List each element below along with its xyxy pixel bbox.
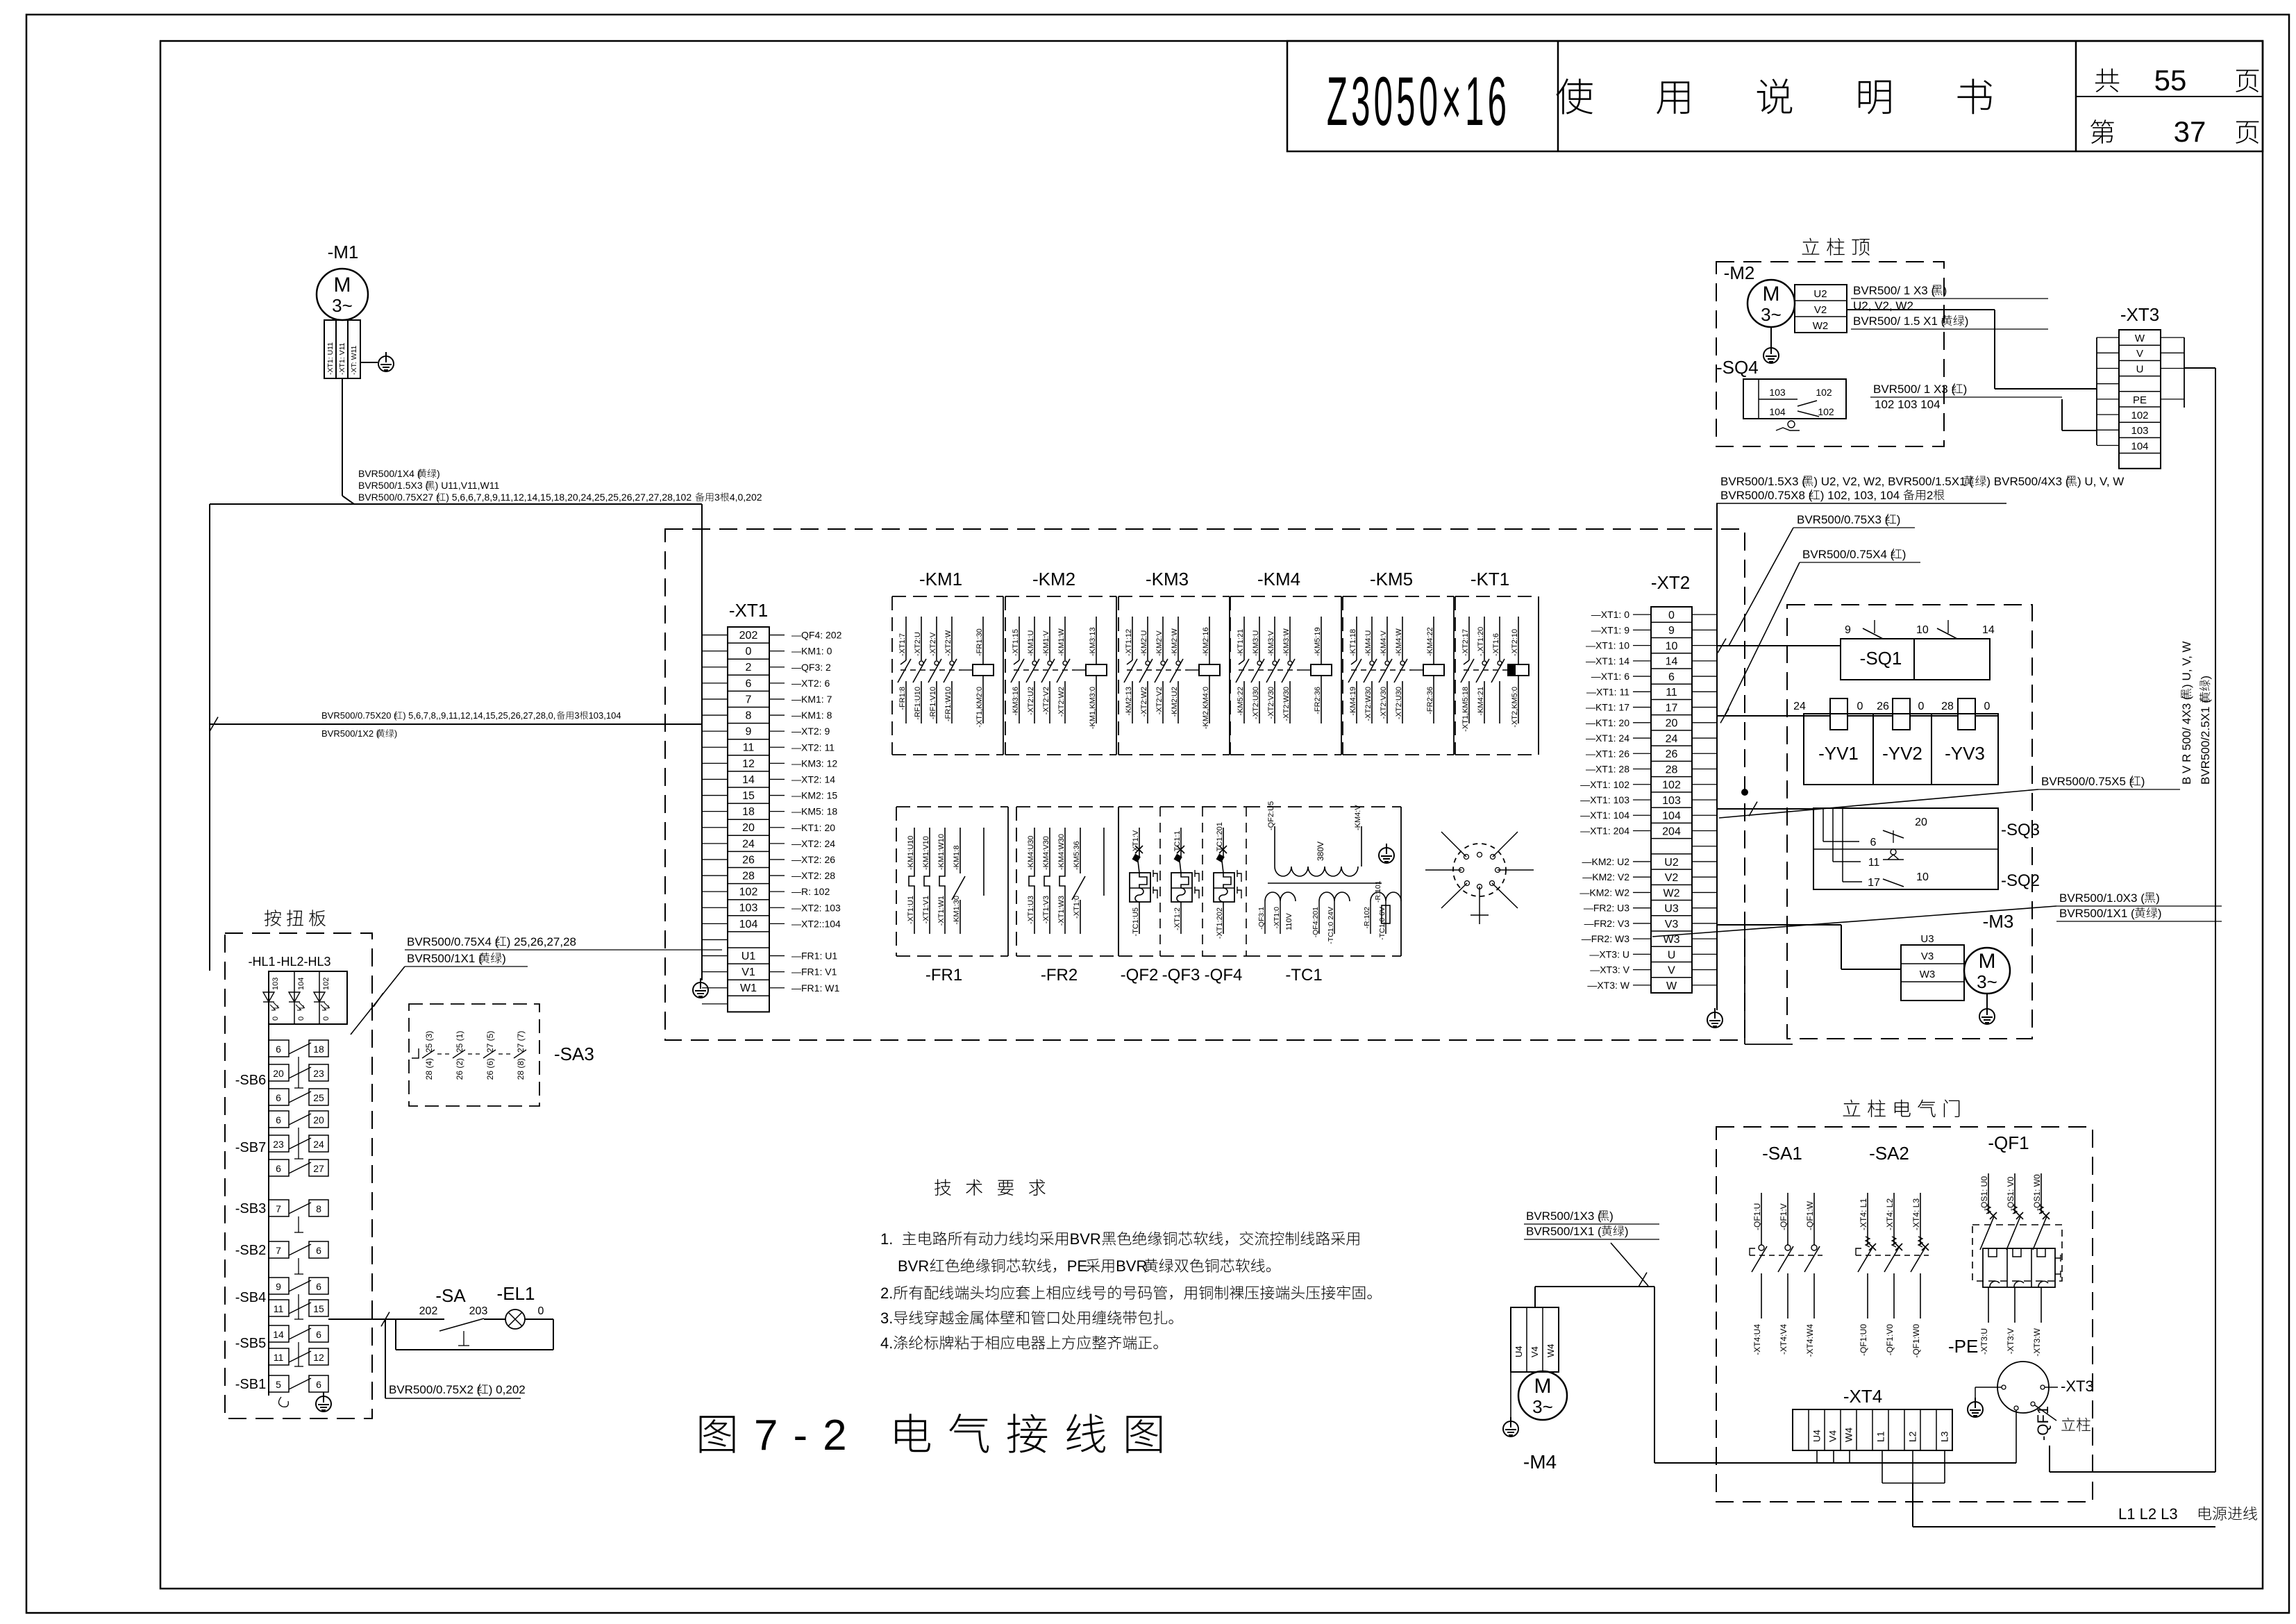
svg-text:20: 20 <box>273 1068 284 1079</box>
svg-text:) 0,202: ) 0,202 <box>489 1383 526 1396</box>
svg-text:-M4: -M4 <box>1523 1451 1557 1473</box>
svg-text:-XT1:0: -XT1:0 <box>1273 907 1281 929</box>
svg-text:-QF2: -QF2 <box>1121 966 1159 985</box>
svg-text:0: 0 <box>1857 701 1863 712</box>
svg-text:-XT3:V: -XT3:V <box>2006 1328 2016 1354</box>
svg-text:20: 20 <box>1915 817 1927 828</box>
svg-text:-KM1:U: -KM1:U <box>1027 630 1035 656</box>
svg-text:—XT1: 204: —XT1: 204 <box>1580 825 1629 836</box>
svg-text:—QF3: 2: —QF3: 2 <box>791 662 831 673</box>
svg-text:-XT3:U: -XT3:U <box>1979 1328 1989 1355</box>
svg-text:-QF1:V: -QF1:V <box>1779 1203 1788 1230</box>
svg-text:-KM4:U30: -KM4:U30 <box>1027 835 1035 870</box>
svg-text:-QF1:W: -QF1:W <box>1805 1200 1815 1230</box>
svg-text:26: 26 <box>742 854 755 866</box>
svg-text:3~: 3~ <box>332 295 353 316</box>
svg-text:W4: W4 <box>1545 1344 1556 1358</box>
svg-text:V3: V3 <box>1665 919 1679 930</box>
svg-text:11: 11 <box>274 1352 284 1363</box>
svg-text:26 (2): 26 (2) <box>455 1058 464 1080</box>
svg-text:BVR: BVR <box>1070 1230 1101 1248</box>
svg-text:24: 24 <box>313 1139 324 1150</box>
svg-text:M: M <box>1979 950 1996 973</box>
svg-text:-FR2:36: -FR2:36 <box>1426 687 1434 714</box>
svg-text:23: 23 <box>313 1068 324 1079</box>
svg-text:-QF2:U5: -QF2:U5 <box>1267 801 1275 830</box>
svg-text:-KM4:V30: -KM4:V30 <box>1042 836 1050 870</box>
svg-text:-XT4:U4: -XT4:U4 <box>1752 1324 1762 1355</box>
svg-text:-XT2:W30: -XT2:W30 <box>1282 687 1291 721</box>
svg-text:26 (6): 26 (6) <box>485 1058 495 1080</box>
svg-text:-XT1,KM5:18: -XT1,KM5:18 <box>1461 687 1470 732</box>
svg-text:BVR500/1X1 (: BVR500/1X1 ( <box>1526 1225 1602 1238</box>
svg-text:55: 55 <box>2154 64 2187 97</box>
svg-text:) 25,26,27,28: ) 25,26,27,28 <box>507 935 576 948</box>
svg-text:L1 L2 L3: L1 L2 L3 <box>2118 1505 2178 1523</box>
svg-text:): ) <box>502 952 506 965</box>
svg-text:28: 28 <box>1941 701 1954 712</box>
svg-text:23: 23 <box>273 1139 284 1150</box>
svg-text:BVR500/0.75X4 (: BVR500/0.75X4 ( <box>407 935 499 948</box>
svg-text:203: 203 <box>469 1305 488 1317</box>
svg-text:—XT2: 26: —XT2: 26 <box>791 854 835 865</box>
svg-text:-SQ3: -SQ3 <box>2001 821 2040 839</box>
svg-text:BVR500/ 1.5 X1 (: BVR500/ 1.5 X1 ( <box>1853 315 1945 328</box>
svg-text:—XT1: 11: —XT1: 11 <box>1586 686 1629 697</box>
svg-text:-XT1:W3: -XT1:W3 <box>1057 896 1066 926</box>
svg-text:-KM2:U2: -KM2:U2 <box>1171 687 1179 717</box>
svg-text:): ) <box>2141 775 2145 788</box>
svg-text:-QF3:1: -QF3:1 <box>1257 907 1266 930</box>
svg-text:-KM4:U: -KM4:U <box>1364 630 1373 656</box>
svg-text:BVR500/0.75X4 (: BVR500/0.75X4 ( <box>1802 548 1895 561</box>
svg-text:-KM2:W: -KM2:W <box>1171 628 1179 656</box>
svg-text:-TC1:0 24V: -TC1:0 24V <box>1327 907 1335 944</box>
svg-text:-KM3:U: -KM3:U <box>1252 630 1260 656</box>
svg-text:-XT2:W2: -XT2:W2 <box>1140 687 1148 717</box>
svg-text:14: 14 <box>1666 656 1678 668</box>
svg-text:202: 202 <box>419 1305 438 1317</box>
svg-text:PE: PE <box>1067 1257 1087 1275</box>
svg-text:8: 8 <box>316 1203 321 1214</box>
svg-text:-XT3: -XT3 <box>2061 1378 2094 1395</box>
svg-text:—KM2: U2: —KM2: U2 <box>1582 856 1630 867</box>
svg-text:-XT2:W: -XT2:W <box>944 630 953 656</box>
svg-text:-KM3: -KM3 <box>1146 569 1189 589</box>
svg-text:-SQ1: -SQ1 <box>1860 648 1902 669</box>
svg-text:2: 2 <box>1927 489 1933 502</box>
svg-text:-KM1:W10: -KM1:W10 <box>937 834 946 870</box>
svg-text:-KM4:V: -KM4:V <box>1354 805 1362 830</box>
svg-text:—XT3: V: —XT3: V <box>1590 964 1629 976</box>
svg-text:BVR500/1X1 (: BVR500/1X1 ( <box>407 952 483 965</box>
svg-text:14: 14 <box>273 1329 284 1340</box>
svg-text:—XT1: 6: —XT1: 6 <box>1591 671 1629 682</box>
svg-text:M: M <box>1534 1375 1552 1398</box>
svg-text:110V: 110V <box>1285 912 1293 930</box>
svg-text:-XT2:V30: -XT2:V30 <box>1267 687 1275 719</box>
svg-text:-XT3: -XT3 <box>2120 304 2159 325</box>
svg-text:-XT4: -XT4 <box>1843 1386 1882 1407</box>
svg-text:—XT1: 102: —XT1: 102 <box>1580 779 1629 790</box>
svg-text:104: 104 <box>2131 440 2148 452</box>
svg-text:BVR: BVR <box>898 1257 929 1275</box>
svg-text:-KM3:V: -KM3:V <box>1267 630 1275 656</box>
svg-text:-KM1,KM3:0: -KM1,KM3:0 <box>1089 687 1097 729</box>
svg-text:-XT2:V30: -XT2:V30 <box>1380 687 1388 719</box>
svg-text:BVR500/1X3 (: BVR500/1X3 ( <box>1526 1209 1602 1223</box>
svg-text:0: 0 <box>1668 610 1675 621</box>
svg-text:) U, V, W: ) U, V, W <box>2077 475 2124 488</box>
svg-text:) U2, V2, W2, BVR500/1.5X1 (: ) U2, V2, W2, BVR500/1.5X1 ( <box>1813 475 1973 488</box>
svg-text:103: 103 <box>739 903 758 914</box>
svg-text:-M3: -M3 <box>1983 911 2014 932</box>
svg-text:-SA1: -SA1 <box>1762 1143 1802 1164</box>
svg-text:0: 0 <box>1984 701 1991 712</box>
svg-text:-FR1: -FR1 <box>925 966 962 985</box>
svg-text:-QF1:U0: -QF1:U0 <box>1859 1324 1868 1356</box>
svg-text:11: 11 <box>1868 857 1880 869</box>
svg-text:—KT1: 20: —KT1: 20 <box>791 822 835 833</box>
svg-text:W2: W2 <box>1664 887 1680 899</box>
svg-text:-XT4: L2: -XT4: L2 <box>1885 1198 1895 1230</box>
svg-text:202: 202 <box>739 630 758 642</box>
svg-text:-,XT1:20: -,XT1:20 <box>1477 627 1485 656</box>
svg-text:-SB4: -SB4 <box>235 1290 266 1305</box>
svg-text:-XT2:V2: -XT2:V2 <box>1042 687 1050 714</box>
svg-text:-XT: W11: -XT: W11 <box>350 345 358 375</box>
svg-text:9: 9 <box>746 726 752 738</box>
svg-text:—XT1: 103: —XT1: 103 <box>1580 794 1629 805</box>
svg-text:11: 11 <box>743 742 755 754</box>
svg-text:0: 0 <box>271 1016 280 1021</box>
svg-text:6: 6 <box>276 1044 281 1055</box>
svg-text:) U11,V11,W11: ) U11,V11,W11 <box>435 480 500 491</box>
svg-text:-KM2: -KM2 <box>1032 569 1075 589</box>
svg-text:-KM4:W: -KM4:W <box>1395 628 1403 656</box>
svg-text:103,104: 103,104 <box>589 710 621 721</box>
svg-text:-XT4: L1: -XT4: L1 <box>1859 1198 1868 1230</box>
svg-text:-KM4:21: -KM4:21 <box>1477 687 1485 716</box>
svg-text:9: 9 <box>1845 624 1851 636</box>
svg-text:W3: W3 <box>1920 969 1936 980</box>
svg-text:—XT1: 9: —XT1: 9 <box>1591 624 1629 635</box>
svg-text:W: W <box>1666 980 1677 992</box>
svg-text:0: 0 <box>538 1305 544 1317</box>
svg-text:0: 0 <box>746 646 752 658</box>
svg-text:—XT2: 11: —XT2: 11 <box>791 742 835 753</box>
svg-text:—XT2::104: —XT2::104 <box>791 918 841 929</box>
svg-text:-KM1:V10: -KM1:V10 <box>922 836 930 870</box>
svg-text:): ) <box>1943 284 1947 297</box>
svg-text:): ) <box>2158 907 2162 920</box>
svg-text:26: 26 <box>1666 748 1678 760</box>
svg-text:-XT1:7: -XT1:7 <box>898 633 907 656</box>
svg-text:2: 2 <box>746 662 752 673</box>
svg-text:380V: 380V <box>1316 842 1325 861</box>
svg-text:-XT1:U1: -XT1:U1 <box>907 896 915 924</box>
svg-text:—XT3: U: —XT3: U <box>1589 948 1629 960</box>
svg-text:-KM2:U: -KM2:U <box>1140 630 1148 656</box>
svg-text:-SB7: -SB7 <box>235 1140 266 1155</box>
svg-text:—XT2: 6: —XT2: 6 <box>791 678 830 689</box>
svg-text:U2: U2 <box>1664 857 1679 869</box>
svg-text:-SB1: -SB1 <box>235 1377 266 1392</box>
svg-text:11: 11 <box>1666 687 1677 698</box>
svg-text:-SA2: -SA2 <box>1869 1143 1909 1164</box>
svg-text:-RF1:U10: -RF1:U10 <box>914 687 922 720</box>
svg-text:14: 14 <box>742 774 755 786</box>
svg-text:): ) <box>2199 676 2212 680</box>
svg-text:28 (4): 28 (4) <box>424 1058 434 1080</box>
svg-text:-M2: -M2 <box>1724 262 1755 283</box>
svg-text:-EL1: -EL1 <box>497 1283 535 1304</box>
svg-text:7-2: 7-2 <box>754 1412 862 1459</box>
svg-text:-XT2,KM5:0: -XT2,KM5:0 <box>1511 687 1519 728</box>
svg-text:B V R 500/ 4X3 (: B V R 500/ 4X3 ( <box>2180 696 2193 785</box>
svg-text:): ) <box>1897 513 1901 526</box>
svg-text:): ) <box>1902 548 1907 561</box>
svg-text:-KM5:19: -KM5:19 <box>1314 627 1322 656</box>
svg-text:27: 27 <box>313 1163 324 1174</box>
svg-text:V3: V3 <box>1921 951 1934 962</box>
svg-text:) BVR500/4X3 (: ) BVR500/4X3 ( <box>1986 475 2069 488</box>
svg-text:-XT2:W2: -XT2:W2 <box>1057 687 1066 717</box>
svg-text:): ) <box>1965 315 1969 328</box>
svg-text:-QF1: -QF1 <box>1988 1132 2029 1153</box>
svg-text:-QF3: -QF3 <box>1162 966 1200 985</box>
svg-text:V4: V4 <box>1530 1346 1540 1357</box>
svg-text:V: V <box>2136 348 2143 360</box>
svg-text:—KM5: 18: —KM5: 18 <box>791 806 837 817</box>
svg-text:—FR1: W1: —FR1: W1 <box>791 982 839 994</box>
svg-text:-SA: -SA <box>435 1285 466 1306</box>
svg-text:-KM2:13: -KM2:13 <box>1125 687 1133 716</box>
svg-text:—KM2: V2: —KM2: V2 <box>1582 871 1629 882</box>
svg-text:37: 37 <box>2174 115 2206 148</box>
svg-text:-KM1:8: -KM1:8 <box>953 846 961 870</box>
svg-text:—XT2: 24: —XT2: 24 <box>791 838 835 849</box>
svg-text:-KT1: -KT1 <box>1470 569 1509 589</box>
svg-text:7: 7 <box>746 694 752 705</box>
svg-text:): ) <box>1625 1225 1629 1238</box>
svg-text:Z3050×16: Z3050×16 <box>1327 62 1510 140</box>
svg-text:6: 6 <box>1870 837 1877 848</box>
svg-text:-PE: -PE <box>1948 1336 1978 1357</box>
svg-text:17: 17 <box>1868 877 1880 889</box>
svg-text:104: 104 <box>1662 810 1681 822</box>
svg-text:V2: V2 <box>1814 304 1827 316</box>
svg-text:-YV3: -YV3 <box>1945 743 1985 764</box>
svg-text:-XT2:U2: -XT2:U2 <box>1027 687 1035 715</box>
svg-text:—R: 102: —R: 102 <box>791 886 830 897</box>
svg-text:-FR1:W10: -FR1:W10 <box>944 687 953 721</box>
svg-text:104: 104 <box>297 978 305 990</box>
svg-text:): ) <box>1609 1209 1614 1223</box>
svg-text:V2: V2 <box>1665 872 1679 884</box>
svg-text:102: 102 <box>322 978 330 990</box>
svg-text:-R:102: -R:102 <box>1363 907 1371 929</box>
svg-text:-SQ4: -SQ4 <box>1716 357 1759 378</box>
svg-text:102: 102 <box>1818 406 1834 417</box>
svg-text:25 (3): 25 (3) <box>424 1031 434 1053</box>
svg-text:-KM4: -KM4 <box>1257 569 1300 589</box>
svg-text:BVR500/ 1 X3 (: BVR500/ 1 X3 ( <box>1873 383 1955 396</box>
svg-text:14: 14 <box>1982 624 1995 636</box>
svg-text:-KM4:V: -KM4:V <box>1380 630 1388 656</box>
svg-text:28: 28 <box>1666 764 1678 776</box>
svg-text:): ) <box>1963 383 1968 396</box>
svg-text:): ) <box>2156 891 2160 905</box>
svg-text:BVR500/0.75X8 (: BVR500/0.75X8 ( <box>1720 489 1813 502</box>
svg-text:6: 6 <box>1668 671 1675 683</box>
svg-text:104: 104 <box>739 919 758 930</box>
svg-text:-KM3:16: -KM3:16 <box>1012 687 1020 716</box>
svg-text:-HL1: -HL1 <box>248 955 275 969</box>
svg-text:-KM4:22: -KM4:22 <box>1426 627 1434 656</box>
svg-text:L1: L1 <box>1875 1431 1886 1442</box>
svg-text:-XT1,KM2:0: -XT1,KM2:0 <box>975 687 984 728</box>
svg-text:-TC1:1: -TC1:1 <box>1173 830 1182 854</box>
svg-text:—FR2: W3: —FR2: W3 <box>1582 933 1629 944</box>
svg-text:6: 6 <box>746 678 752 689</box>
svg-text:-KM2,KM4:0: -KM2,KM4:0 <box>1202 687 1210 729</box>
svg-text:—XT1: 104: —XT1: 104 <box>1580 810 1629 821</box>
svg-text:—XT2: 9: —XT2: 9 <box>791 726 830 737</box>
svg-text:10: 10 <box>1916 624 1929 636</box>
svg-text:BVR: BVR <box>1116 1257 1147 1275</box>
svg-text:102 103 104: 102 103 104 <box>1875 398 1941 411</box>
svg-text:—FR2: U3: —FR2: U3 <box>1584 903 1629 914</box>
svg-text:5: 5 <box>276 1379 281 1390</box>
svg-text:0: 0 <box>1918 701 1925 712</box>
svg-text:BVR500/0.75X3 (: BVR500/0.75X3 ( <box>1797 513 1889 526</box>
svg-text:) 5,6,6,7,8,9,11,12,14,15,18,: ) 5,6,6,7,8,9,11,12,14,15,18,20,24,25,25… <box>446 492 692 503</box>
svg-text:-XT4:V4: -XT4:V4 <box>1779 1324 1788 1355</box>
svg-text:—KT1: 17: —KT1: 17 <box>1586 702 1629 713</box>
svg-text:104: 104 <box>1769 406 1786 417</box>
svg-text:-XT2:U30: -XT2:U30 <box>1395 687 1403 719</box>
svg-text:6: 6 <box>276 1092 281 1103</box>
svg-text:10: 10 <box>1916 871 1929 883</box>
svg-text:4.: 4. <box>880 1334 893 1352</box>
svg-text:-QF4:201: -QF4:201 <box>1312 907 1320 938</box>
svg-text:BVR500/0.75X20 (: BVR500/0.75X20 ( <box>321 710 397 721</box>
svg-text:-TC1: -TC1 <box>1285 966 1322 985</box>
svg-text:BVR500/1.5X3 (: BVR500/1.5X3 ( <box>358 480 429 491</box>
svg-text:-KM1: -KM1 <box>919 569 962 589</box>
svg-text:20: 20 <box>742 822 755 834</box>
svg-text:—XT1: 28: —XT1: 28 <box>1586 764 1629 775</box>
svg-text:3: 3 <box>574 710 579 721</box>
svg-text:102: 102 <box>739 887 758 898</box>
svg-text:M: M <box>334 274 351 296</box>
svg-text:6: 6 <box>276 1163 281 1174</box>
svg-text:-XT1:6: -XT1:6 <box>1492 633 1500 656</box>
svg-text:-QF1:V0: -QF1:V0 <box>1885 1324 1895 1356</box>
svg-text:-XT1:12: -XT1:12 <box>1125 629 1133 656</box>
svg-text:9: 9 <box>276 1281 281 1292</box>
svg-text:U4: U4 <box>1514 1346 1524 1357</box>
svg-text:3: 3 <box>714 492 720 503</box>
svg-text:L3: L3 <box>1939 1431 1950 1442</box>
svg-text:-FR1:8: -FR1:8 <box>898 687 907 710</box>
svg-text:BVR500/1X2 (: BVR500/1X2 ( <box>321 728 380 739</box>
svg-text:-SB2: -SB2 <box>235 1243 266 1258</box>
svg-text:6: 6 <box>316 1329 321 1340</box>
svg-text:-KM4:19: -KM4:19 <box>1349 687 1357 716</box>
svg-text:PE: PE <box>2133 394 2147 406</box>
svg-text:—KM1: 7: —KM1: 7 <box>791 694 832 705</box>
svg-text:103: 103 <box>1769 387 1786 398</box>
svg-text:-KM1:W: -KM1:W <box>1057 628 1066 656</box>
svg-text:-KM1:V: -KM1:V <box>1042 630 1050 656</box>
svg-text:-XT2:V2: -XT2:V2 <box>1155 687 1164 714</box>
svg-text:10: 10 <box>1666 640 1678 652</box>
svg-text:24: 24 <box>1666 733 1678 745</box>
svg-text:7: 7 <box>276 1245 281 1256</box>
svg-text:103: 103 <box>271 978 280 990</box>
svg-text:—XT2: 14: —XT2: 14 <box>791 773 835 785</box>
svg-text:-XT1:V1: -XT1:V1 <box>922 896 930 923</box>
svg-text:) 5,6,7,8,,9,11,12,14,15,25,26: ) 5,6,7,8,,9,11,12,14,15,25,26,27,28,0, <box>403 710 555 721</box>
svg-text:—KM2: W2: —KM2: W2 <box>1579 887 1629 898</box>
svg-text:—XT1: 24: —XT1: 24 <box>1586 733 1629 744</box>
svg-text:-QF1:U: -QF1:U <box>1752 1203 1762 1230</box>
svg-text:1.: 1. <box>880 1230 893 1248</box>
svg-text:9: 9 <box>1668 625 1675 637</box>
svg-text:3~: 3~ <box>1761 304 1782 325</box>
svg-text:-XT2:U: -XT2:U <box>914 632 922 656</box>
svg-text:-SQ2: -SQ2 <box>2001 871 2040 890</box>
svg-text:U2: U2 <box>1813 288 1827 300</box>
svg-text:—KM2: 15: —KM2: 15 <box>791 790 837 801</box>
svg-text:20: 20 <box>1666 718 1678 730</box>
svg-text:-YV1: -YV1 <box>1818 743 1859 764</box>
svg-text:-KM5: -KM5 <box>1370 569 1413 589</box>
svg-text:—XT2: 28: —XT2: 28 <box>791 870 835 881</box>
svg-text:W4: W4 <box>1843 1428 1854 1442</box>
svg-text:6: 6 <box>276 1114 281 1125</box>
svg-text:27 (5): 27 (5) <box>485 1031 495 1053</box>
svg-text:—KM1: 8: —KM1: 8 <box>791 710 832 721</box>
svg-text:-KM4:W30: -KM4:W30 <box>1057 834 1066 870</box>
svg-text:U1: U1 <box>741 951 756 962</box>
svg-text:—XT1: 10: —XT1: 10 <box>1586 640 1629 651</box>
svg-text:20: 20 <box>313 1114 324 1125</box>
svg-text:BVR500/1X4 (: BVR500/1X4 ( <box>358 468 421 479</box>
svg-text:-KM5:22: -KM5:22 <box>1237 687 1245 716</box>
svg-text:V4: V4 <box>1827 1430 1838 1442</box>
svg-text:-KM1:30: -KM1:30 <box>953 896 961 925</box>
svg-text:3~: 3~ <box>1532 1396 1553 1417</box>
svg-text:BVR500/0.75X2 (: BVR500/0.75X2 ( <box>389 1383 481 1396</box>
svg-text:-XT1:2: -XT1:2 <box>1173 907 1182 930</box>
svg-text:-XT1:202: -XT1:202 <box>1216 907 1224 939</box>
svg-text:-TC1:U5: -TC1:U5 <box>1132 907 1140 937</box>
svg-text:W2: W2 <box>1813 320 1829 332</box>
svg-text:-XT1:15: -XT1:15 <box>1012 629 1020 656</box>
svg-text:4,0,202: 4,0,202 <box>730 492 762 503</box>
svg-text:—XT2: 103: —XT2: 103 <box>791 902 841 913</box>
svg-text:-XT3:W: -XT3:W <box>2032 1328 2042 1356</box>
svg-text:—FR1: V1: —FR1: V1 <box>791 966 837 978</box>
svg-text:—XT1: 14: —XT1: 14 <box>1586 655 1629 667</box>
svg-text:25: 25 <box>313 1092 324 1103</box>
svg-text:-XT4:W4: -XT4:W4 <box>1805 1324 1815 1357</box>
svg-text:18: 18 <box>742 806 755 818</box>
svg-text:BVR500/2.5X1 (: BVR500/2.5X1 ( <box>2199 699 2212 785</box>
